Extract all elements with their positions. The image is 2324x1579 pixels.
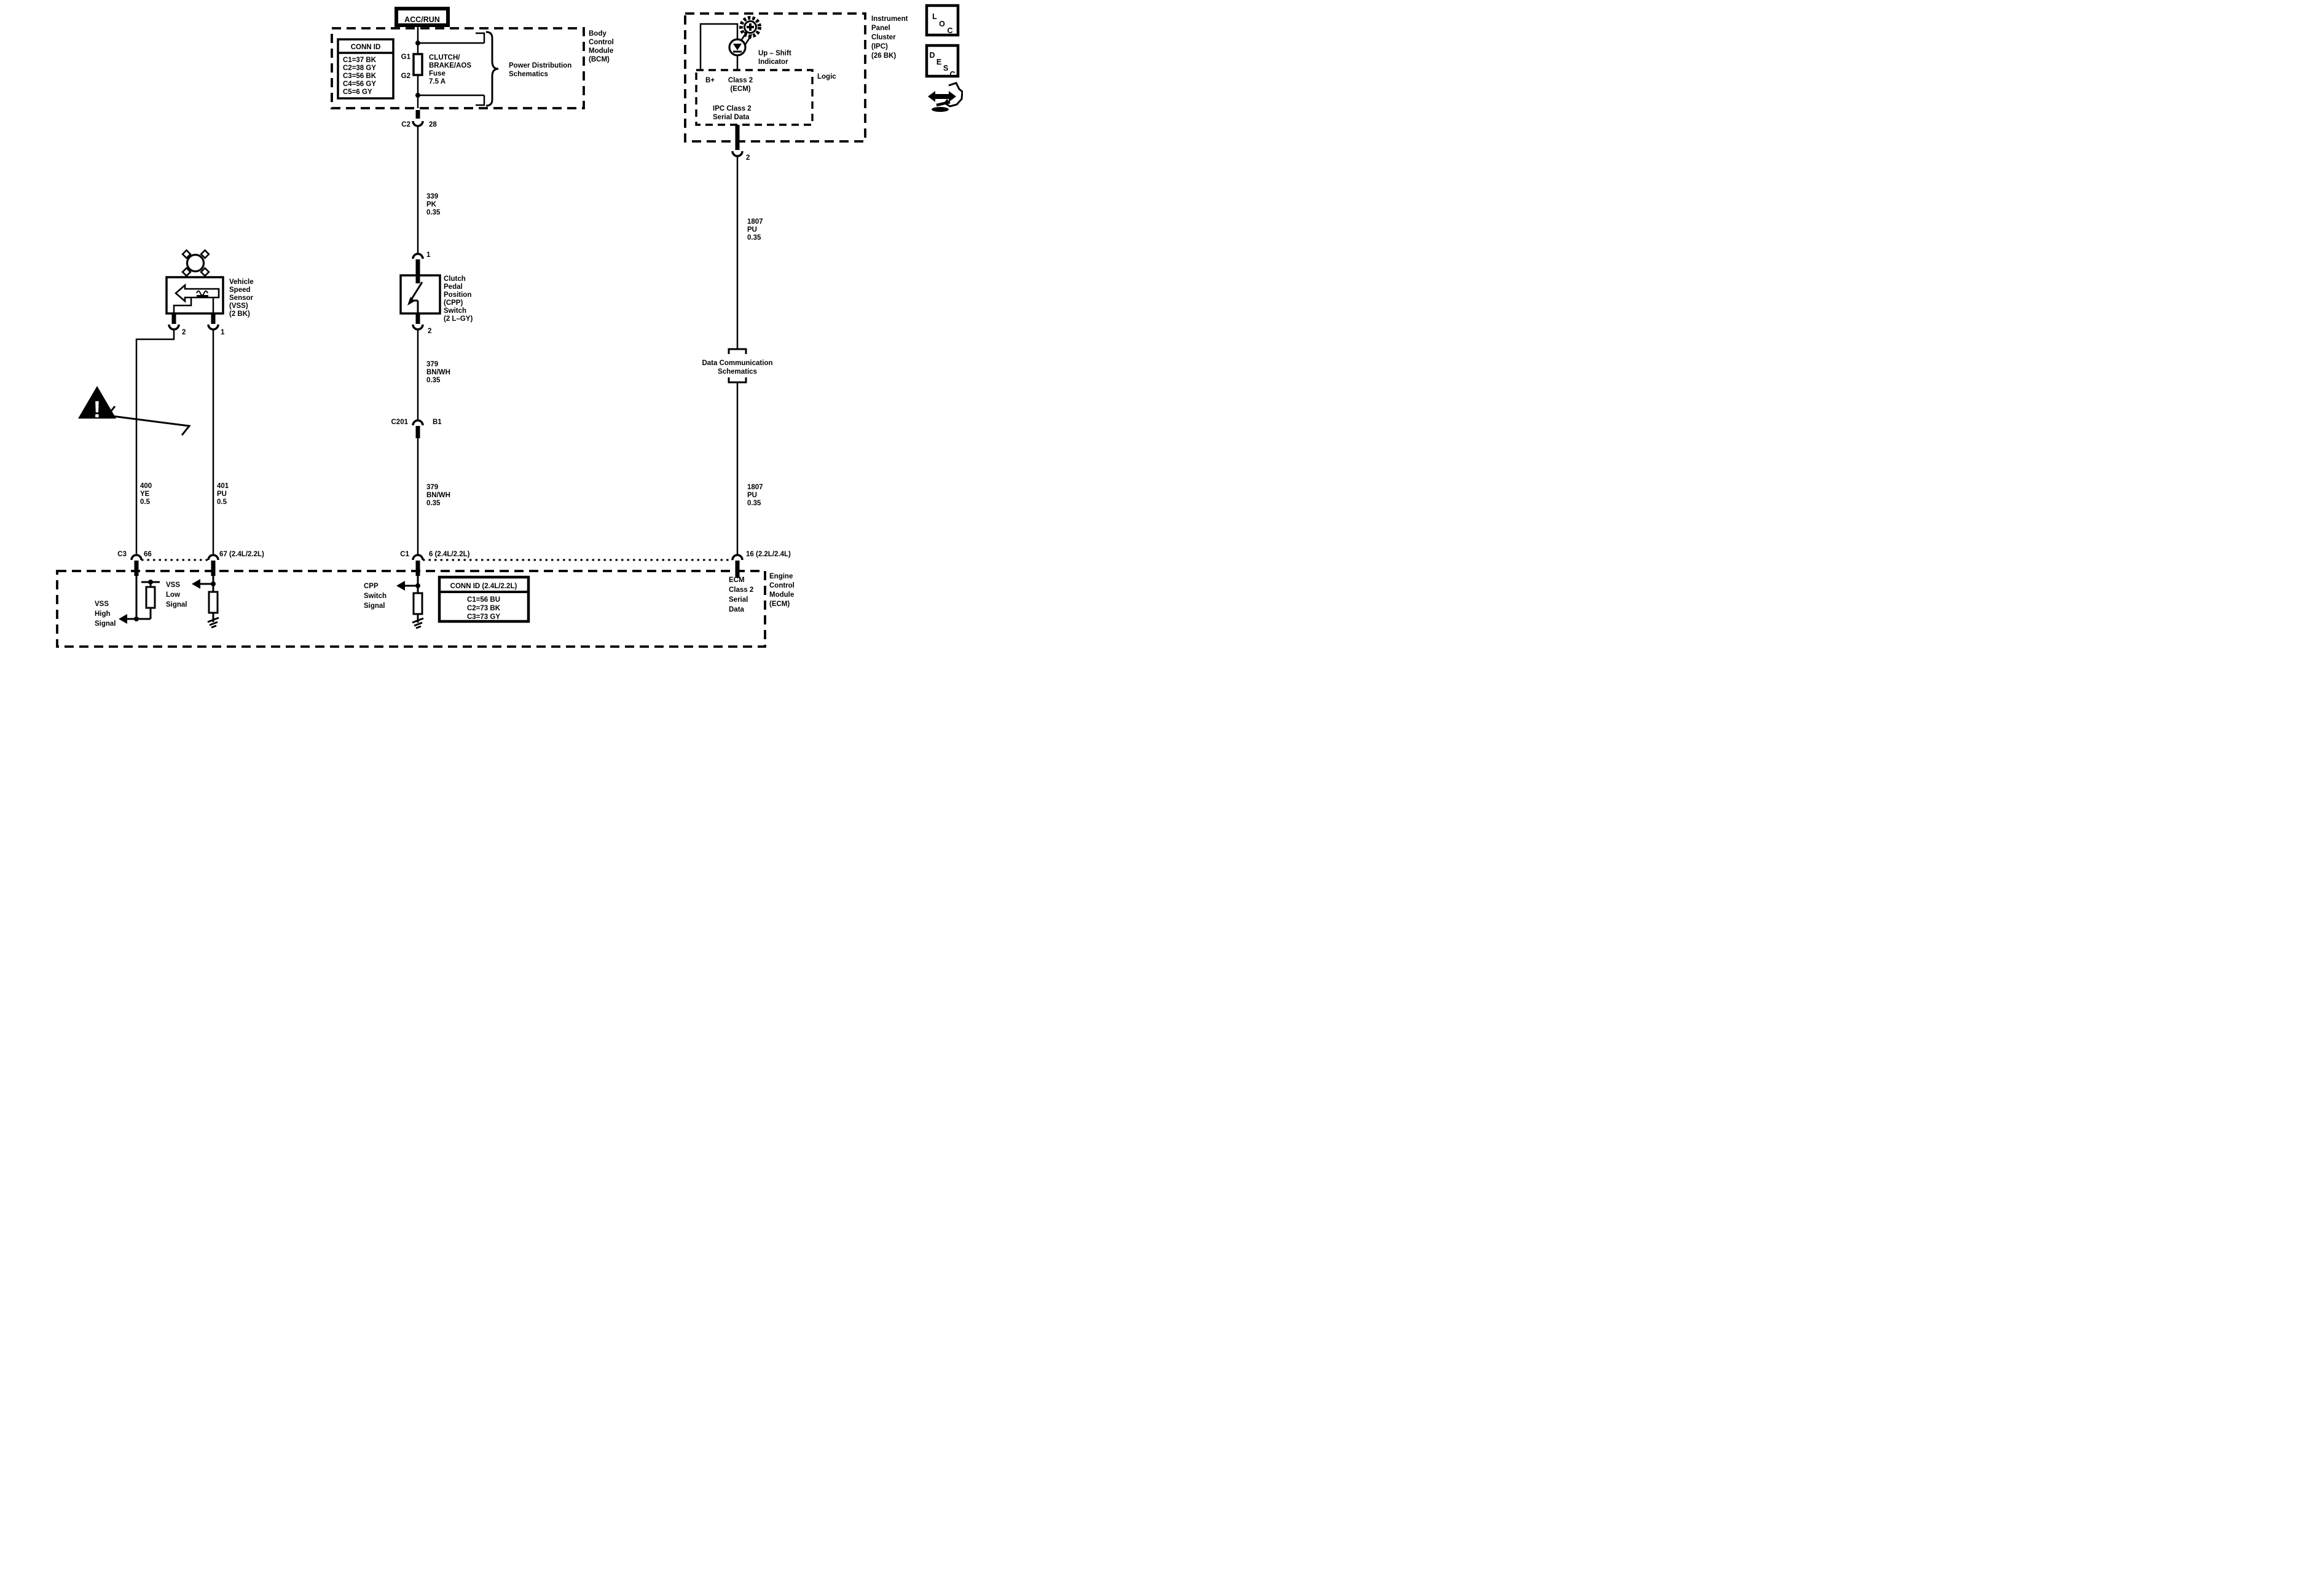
- ecm-serial-label-line: ECM: [729, 577, 745, 584]
- pin-label: 1: [221, 329, 225, 336]
- cpp-label-line: (2 L–GY): [444, 315, 473, 323]
- wiring-diagram-page: ACC/RUN CONN ID C1=37 BK C2=38 GY C3=56 …: [0, 0, 963, 655]
- serial-data-circuit: 1807 PU 0.35 Data Communication Schemati…: [423, 156, 791, 578]
- pin-label: B1: [433, 419, 442, 426]
- wire-label-line: 0.35: [747, 500, 761, 507]
- vss-low-input: VSS Low Signal: [166, 576, 219, 628]
- ecm-serial-label-line: Data: [729, 606, 745, 613]
- wire-label-line: PU: [217, 490, 227, 498]
- fuse-label-line: BRAKE/AOS: [429, 62, 471, 69]
- double-arrow-icon: [928, 91, 956, 102]
- svg-text:C: C: [949, 70, 955, 79]
- power-dist-label-line: Power Distribution: [509, 62, 571, 69]
- bcm-label-line: Control: [589, 39, 614, 46]
- brace: [486, 32, 498, 106]
- conn-id-title: CONN ID: [351, 44, 381, 51]
- svg-text:E: E: [936, 58, 941, 66]
- svg-text:!: !: [93, 397, 101, 423]
- cpp-circuit: C2 28 339 PK 0.35 1 Clutch Pedal Positio…: [391, 110, 473, 576]
- ecm-label-line: Module: [769, 591, 794, 599]
- wire-label-line: 0.35: [747, 234, 761, 242]
- ipc-label-line: Panel: [871, 25, 890, 32]
- connector-vss-2: [169, 325, 179, 329]
- twisted-pair-icon: [108, 406, 189, 435]
- wire-label-line: 401: [217, 482, 229, 490]
- class2-label-line: (ECM): [730, 85, 750, 93]
- conn-id-row: C2=38 GY: [343, 65, 376, 72]
- svg-text:D: D: [929, 51, 935, 60]
- connector-c2: [413, 121, 423, 126]
- datacomm-reference: Data Communication Schematics: [702, 349, 772, 382]
- wire-label-line: 1807: [747, 484, 763, 491]
- wire-label-line: BN/WH: [426, 492, 450, 499]
- svg-text:S: S: [943, 64, 948, 73]
- wire-label-line: BN/WH: [426, 369, 450, 376]
- conn-id-row: C5=6 GY: [343, 89, 372, 96]
- desc-icon: D E S C: [927, 45, 958, 79]
- cpp-signal-label-line: CPP: [364, 583, 379, 590]
- pin-label: 6 (2.4L/2.2L): [429, 551, 470, 558]
- conn-id-row: C3=56 BK: [343, 73, 377, 80]
- fuse-label-line: 7.5 A: [429, 78, 446, 85]
- wire-label-line: PK: [426, 201, 437, 208]
- connector-c201: [413, 420, 423, 425]
- ecm-section: Engine Control Module (ECM) ECM Class 2 …: [57, 571, 795, 647]
- bplus-label: B+: [705, 77, 715, 84]
- wiring-diagram: ACC/RUN CONN ID C1=37 BK C2=38 GY C3=56 …: [0, 0, 963, 655]
- cpp-label-line: Pedal: [444, 283, 463, 291]
- connector-cpp-2: [413, 325, 423, 329]
- ecm-serial-label-line: Class 2: [729, 586, 753, 594]
- connector-label: C3: [117, 551, 127, 558]
- ecm-box: [57, 571, 765, 647]
- ipc-label-line: (26 BK): [871, 52, 896, 60]
- cpp-signal-label-line: Switch: [364, 593, 387, 600]
- connector-c1-16: [732, 555, 742, 560]
- connector-c1: [413, 555, 423, 560]
- connector-label: C201: [391, 419, 409, 426]
- ecm-conn-id-table: CONN ID (2.4L/2.2L) C1=56 BU C2=73 BK C3…: [439, 577, 528, 621]
- fuse-label-line: Fuse: [429, 70, 446, 77]
- bcm-label-line: Body: [589, 30, 607, 37]
- wire-label-line: 0.35: [426, 377, 441, 384]
- pin-label: 1: [426, 251, 431, 259]
- pin-label: 66: [144, 551, 152, 558]
- pin-label: 28: [429, 121, 437, 128]
- conn-id-row: C1=37 BK: [343, 57, 377, 64]
- vss-high-label-line: Signal: [95, 620, 116, 628]
- ipc-section: Instrument Panel Cluster (IPC) (26 BK) L…: [685, 14, 908, 162]
- vss-sensor-icon: [167, 250, 223, 313]
- conn-id-title: CONN ID (2.4L/2.2L): [450, 583, 517, 590]
- vss-low-label-line: Low: [166, 591, 180, 599]
- gear-icon: [741, 18, 760, 36]
- pin-label: 16 (2.2L/2.4L): [746, 551, 791, 558]
- vss-label-line: Speed: [229, 286, 251, 294]
- logic-label: Logic: [817, 73, 836, 81]
- ipc-serial-label-line: IPC Class 2: [713, 105, 752, 112]
- wire-label-line: 0.5: [217, 498, 227, 506]
- upshift-label-line: Up – Shift: [758, 50, 791, 57]
- ground-icon: [412, 618, 423, 628]
- cpp-label-line: (CPP): [444, 299, 463, 307]
- ipc-label-line: (IPC): [871, 43, 888, 50]
- wire-label-line: 379: [426, 484, 438, 491]
- ecm-label-line: Control: [769, 582, 795, 589]
- ipc-serial-label-line: Serial Data: [713, 114, 750, 121]
- vss-label-line: (2 BK): [229, 310, 250, 318]
- ecm-serial-label-line: Serial: [729, 596, 748, 604]
- warning-icon: !: [78, 386, 116, 423]
- loc-icon: L O C: [927, 6, 958, 35]
- conn-id-row: C2=73 BK: [467, 605, 501, 612]
- connector-vss-1: [208, 325, 218, 329]
- wiring-navigation-icon: [928, 83, 962, 112]
- connector-label: C2: [401, 121, 410, 128]
- svg-text:O: O: [939, 20, 945, 28]
- fuse-terminal-g1: G1: [401, 53, 411, 61]
- class2-label-line: Class 2: [728, 77, 753, 84]
- cpp-label-line: Position: [444, 291, 471, 299]
- ground-icon: [208, 618, 219, 628]
- ecm-label-line: (ECM): [769, 600, 790, 608]
- svg-text:L: L: [932, 12, 937, 21]
- vss-high-input: VSS High Signal: [95, 576, 160, 628]
- resistor-icon: [209, 592, 218, 613]
- wire-label-line: 0.35: [426, 500, 441, 507]
- connector-cpp-1: [413, 254, 423, 259]
- bcm-section: ACC/RUN CONN ID C1=37 BK C2=38 GY C3=56 …: [332, 9, 614, 108]
- resistor-icon: [414, 593, 422, 614]
- connector-c3-67: [208, 555, 218, 560]
- fuse-label-line: CLUTCH/: [429, 54, 460, 61]
- wire-label-line: 0.5: [140, 498, 151, 506]
- wire-label-line: PU: [747, 492, 757, 499]
- led-indicator-icon: [729, 30, 752, 55]
- cpp-label-line: Switch: [444, 307, 466, 315]
- conn-id-row: C1=56 BU: [467, 596, 500, 604]
- pin-label: 67 (2.4L/2.2L): [219, 551, 264, 558]
- wire-label-line: 1807: [747, 218, 763, 226]
- wire-label-line: 400: [140, 482, 152, 490]
- cpp-switch-box: [401, 275, 440, 313]
- conn-id-row: C4=56 GY: [343, 81, 376, 88]
- connector-c3-66: [132, 555, 141, 560]
- vss-low-label-line: Signal: [166, 601, 187, 608]
- vss-high-label-line: VSS: [95, 600, 109, 608]
- wires: [136, 329, 213, 554]
- signal-arrow-icon: [192, 579, 200, 589]
- vss-label-line: Sensor: [229, 294, 254, 302]
- bcm-label-line: (BCM): [589, 56, 610, 63]
- vss-low-label-line: VSS: [166, 581, 180, 589]
- vss-label-line: Vehicle: [229, 278, 254, 286]
- wrench-icon: [932, 107, 949, 112]
- cpp-signal-input: CPP Switch Signal: [364, 576, 423, 628]
- power-source-label: ACC/RUN: [404, 15, 440, 24]
- pin-label: 2: [746, 154, 750, 162]
- fuse-icon: [414, 54, 422, 75]
- resistor-icon: [146, 587, 155, 608]
- ipc-label-line: Cluster: [871, 34, 896, 41]
- wire-label-line: 0.35: [426, 209, 441, 216]
- wire-label-line: 379: [426, 361, 438, 368]
- upshift-label-line: Indicator: [758, 58, 788, 66]
- power-dist-label-line: Schematics: [509, 71, 548, 78]
- connector-label: C1: [400, 551, 409, 558]
- ipc-label-line: Instrument: [871, 15, 908, 23]
- fuse-terminal-g2: G2: [401, 73, 410, 80]
- conn-id-row: C3=73 GY: [467, 613, 500, 621]
- datacomm-label-line: Schematics: [718, 368, 757, 376]
- wire-label-line: YE: [140, 490, 150, 498]
- pin-label: 2: [182, 329, 186, 336]
- ecm-label-line: Engine: [769, 573, 793, 580]
- wire-label-line: 339: [426, 193, 438, 200]
- wire-label-line: PU: [747, 226, 757, 234]
- vss-label-line: (VSS): [229, 302, 248, 310]
- signal-arrow-icon: [119, 614, 127, 624]
- pin-label: 2: [428, 328, 431, 335]
- connector-ipc-2: [732, 151, 742, 156]
- vss-section: Vehicle Speed Sensor (VSS) (2 BK) 2 1 ! …: [78, 250, 264, 576]
- svg-text:C: C: [947, 26, 952, 35]
- bcm-label-line: Module: [589, 47, 613, 55]
- vss-high-label-line: High: [95, 610, 111, 618]
- corner-icons: L O C D E S C: [927, 6, 962, 112]
- cpp-signal-label-line: Signal: [364, 602, 385, 610]
- signal-arrow-icon: [396, 581, 405, 591]
- datacomm-label-line: Data Communication: [702, 360, 772, 367]
- cpp-label-line: Clutch: [444, 275, 466, 283]
